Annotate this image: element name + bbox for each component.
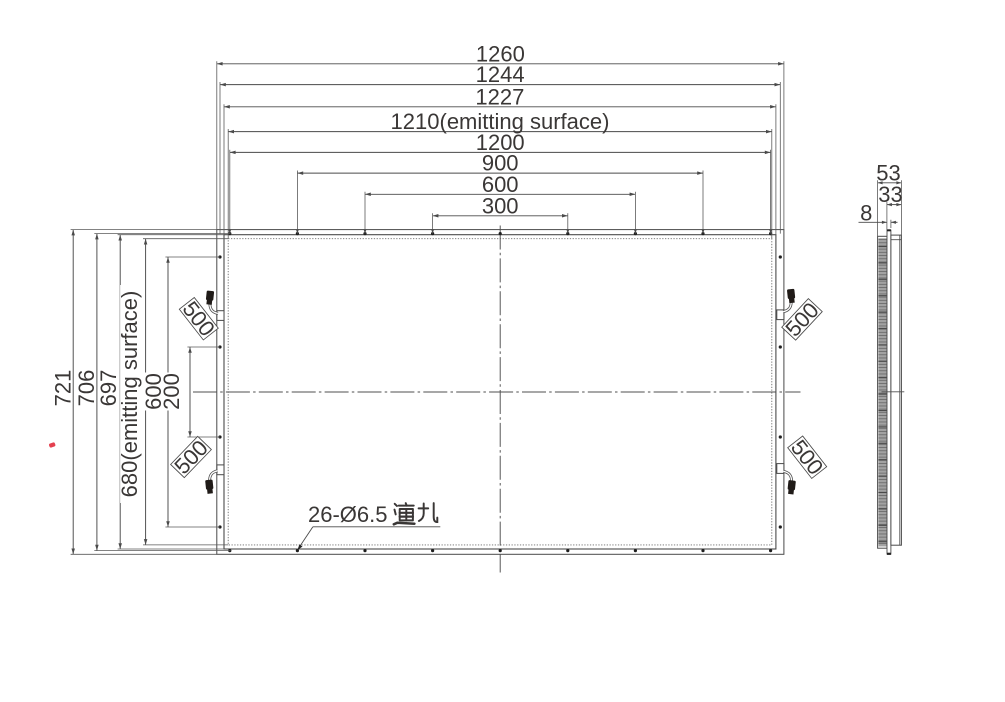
svg-text:8: 8 bbox=[860, 200, 872, 225]
svg-text:26-Ø6.5: 26-Ø6.5 bbox=[308, 502, 388, 527]
svg-text:706: 706 bbox=[74, 370, 99, 407]
svg-text:721: 721 bbox=[50, 370, 75, 407]
svg-text:200: 200 bbox=[159, 373, 184, 410]
svg-text:1227: 1227 bbox=[475, 84, 524, 109]
svg-text:33: 33 bbox=[878, 182, 902, 207]
svg-text:680(emitting surface): 680(emitting surface) bbox=[117, 291, 142, 498]
svg-text:300: 300 bbox=[482, 193, 519, 218]
